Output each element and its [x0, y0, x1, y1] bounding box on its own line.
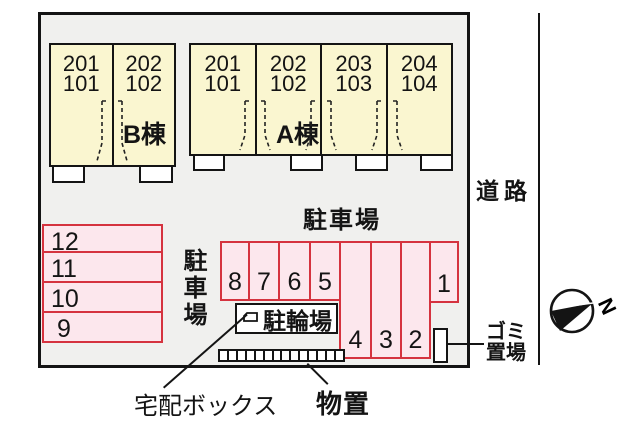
space-number: 6: [280, 268, 309, 297]
road-edge-line: [538, 13, 540, 365]
unit-lower-number: 102: [257, 74, 321, 94]
unit-lower-number: 104: [388, 74, 452, 94]
space-number: 9: [57, 315, 71, 344]
space-number: 10: [51, 285, 79, 314]
stairs-dashed-icon: [237, 99, 273, 154]
garbage-label-line2: 置場: [486, 343, 526, 364]
entrance-porch: [420, 154, 453, 171]
space-number: 1: [431, 270, 457, 299]
unit-lower-number: 101: [191, 74, 255, 94]
space-number: 4: [341, 326, 370, 355]
unit-lower-number: 103: [322, 74, 386, 94]
parking-space-11: 11: [42, 251, 163, 283]
compass-icon: N: [545, 284, 630, 342]
parking-space-5: 5: [309, 241, 341, 301]
parking-space-9: 9: [42, 311, 163, 343]
stairs-dashed-icon: [303, 99, 339, 154]
space-number: 5: [311, 268, 339, 297]
storage-row: [218, 349, 345, 362]
space-number: 11: [51, 255, 77, 284]
garbage-area-label: ゴミ 置場: [486, 322, 526, 364]
space-number: 7: [250, 268, 278, 297]
parking-lot-label-vertical: 駐車場: [175, 248, 210, 329]
bicycle-parking-label: 駐輪場: [263, 302, 332, 336]
entrance-porch: [52, 165, 85, 183]
unit-lower-number: 102: [114, 74, 175, 94]
entrance-porch: [139, 165, 173, 183]
garbage-label-line1: ゴミ: [486, 322, 526, 343]
parking-space-8: 8: [220, 241, 250, 301]
parking-space-7: 7: [248, 241, 280, 301]
space-number: 3: [372, 326, 400, 355]
parking-space-2: 2: [400, 241, 431, 359]
parking-space-3: 3: [370, 241, 402, 359]
delivery-box-label: 宅配ボックス: [134, 386, 277, 421]
parking-space-6: 6: [278, 241, 311, 301]
stairs-dashed-icon: [369, 99, 405, 154]
parking-space-1: 1: [429, 241, 459, 303]
space-number: 2: [402, 326, 429, 355]
entrance-porch: [290, 154, 323, 171]
compass-north-label: N: [593, 295, 620, 318]
road-label: 道路: [476, 172, 532, 206]
garbage-pointer-line: [448, 343, 484, 345]
bicycle-parking-box: 駐輪場: [235, 303, 338, 334]
parking-space-4: 4: [339, 241, 372, 359]
entrance-porch: [355, 154, 388, 171]
unit-lower-number: 101: [51, 74, 112, 94]
stairs-dashed-icon: [94, 99, 130, 165]
storage-label: 物置: [316, 384, 370, 421]
parking-space-10: 10: [42, 281, 163, 313]
space-number: 8: [222, 268, 248, 297]
entrance-porch: [193, 154, 225, 171]
storage-cell: [334, 349, 345, 362]
parking-space-12: 12: [42, 224, 163, 253]
site-plan: 道路 201 101 202 102 B棟 201 101 202: [0, 0, 640, 427]
garbage-area-box: [433, 328, 448, 363]
parking-lot-label: 駐車場: [303, 200, 381, 235]
